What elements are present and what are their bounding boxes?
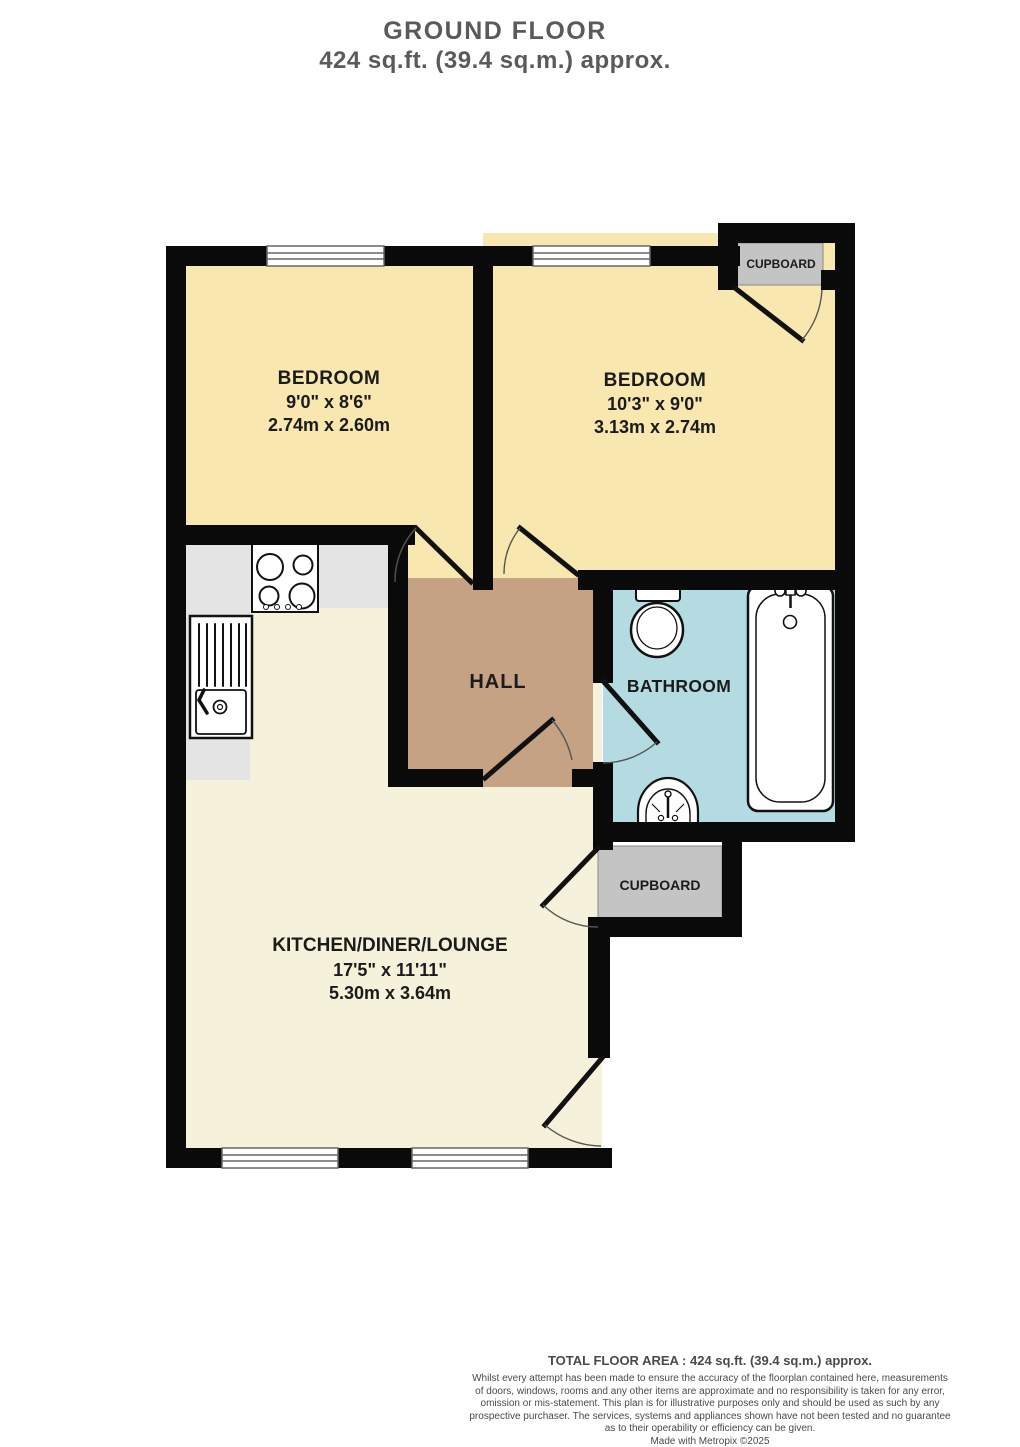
bedroom-right-label: BEDROOM [604,370,707,391]
floorplan-page: GROUND FLOOR 424 sq.ft. (39.4 sq.m.) app… [0,0,1020,1447]
disclaimer-line: omission or mis-statement. This plan is … [440,1398,980,1411]
wall-left [166,246,186,1167]
floorplan-drawing: BEDROOM 9'0" x 8'6" 2.74m x 2.60m BEDROO… [0,0,1020,1447]
bedroom-right-dims-imperial: 10'3" x 9'0" [607,394,703,414]
toilet-icon [631,584,683,657]
kitchen-sink-icon [190,616,252,738]
bedroom-left-dims-imperial: 9'0" x 8'6" [286,392,372,412]
bedroom-left-label: BEDROOM [278,368,381,389]
wall-bathroom-left-upper [593,590,613,683]
wall-right [835,223,855,842]
wall-bedroom-divider [473,266,493,590]
wall-cupboard-left-jamb [718,223,738,290]
bedroom-right-dims-metric: 3.13m x 2.74m [594,417,716,437]
disclaimer-line: as to their operability or efficiency ca… [440,1423,980,1436]
plan-footer: TOTAL FLOOR AREA : 424 sq.ft. (39.4 sq.m… [440,1353,980,1447]
kitchen-dims-metric: 5.30m x 3.64m [329,983,451,1003]
wall-cupboard-right-jamb [821,270,835,290]
cupboard-middle-label: CUPBOARD [620,877,701,893]
wall-kitchen-right [588,917,610,1058]
window-bedroom-right [533,246,650,266]
total-floor-area: TOTAL FLOOR AREA : 424 sq.ft. (39.4 sq.m… [440,1353,980,1368]
disclaimer: Whilst every attempt has been made to en… [440,1373,980,1447]
wall-cupboard-middle-bottom [588,917,742,937]
wall-hall-left [388,525,408,787]
cupboard-top-right-label: CUPBOARD [746,257,816,271]
bathroom-label: BATHROOM [627,676,731,696]
wall-top-main [166,246,740,266]
kitchen-dims-imperial: 17'5" x 11'11" [333,960,447,980]
disclaimer-line: Whilst every attempt has been made to en… [440,1373,980,1386]
disclaimer-line: prospective purchaser. The services, sys… [440,1411,980,1424]
window-bedroom-left [267,246,384,266]
hall-label: HALL [469,671,526,693]
credit-line: Made with Metropix ©2025 [440,1436,980,1447]
window-lounge-right [412,1148,528,1168]
stove-hob-icon [252,544,318,612]
wall-bedroom-left-bottom [166,525,415,545]
wall-bathroom-top [578,570,855,590]
kitchen-diner-lounge-label: KITCHEN/DINER/LOUNGE [272,935,507,956]
disclaimer-line: of doors, windows, rooms and any other i… [440,1386,980,1399]
wall-hall-bottom-left [388,769,483,787]
room-floors [176,233,845,1157]
wall-cupboard-top [718,223,855,243]
window-lounge-left [222,1148,338,1168]
bathtub-icon [748,586,833,811]
bedroom-left-dims-metric: 2.74m x 2.60m [268,415,390,435]
